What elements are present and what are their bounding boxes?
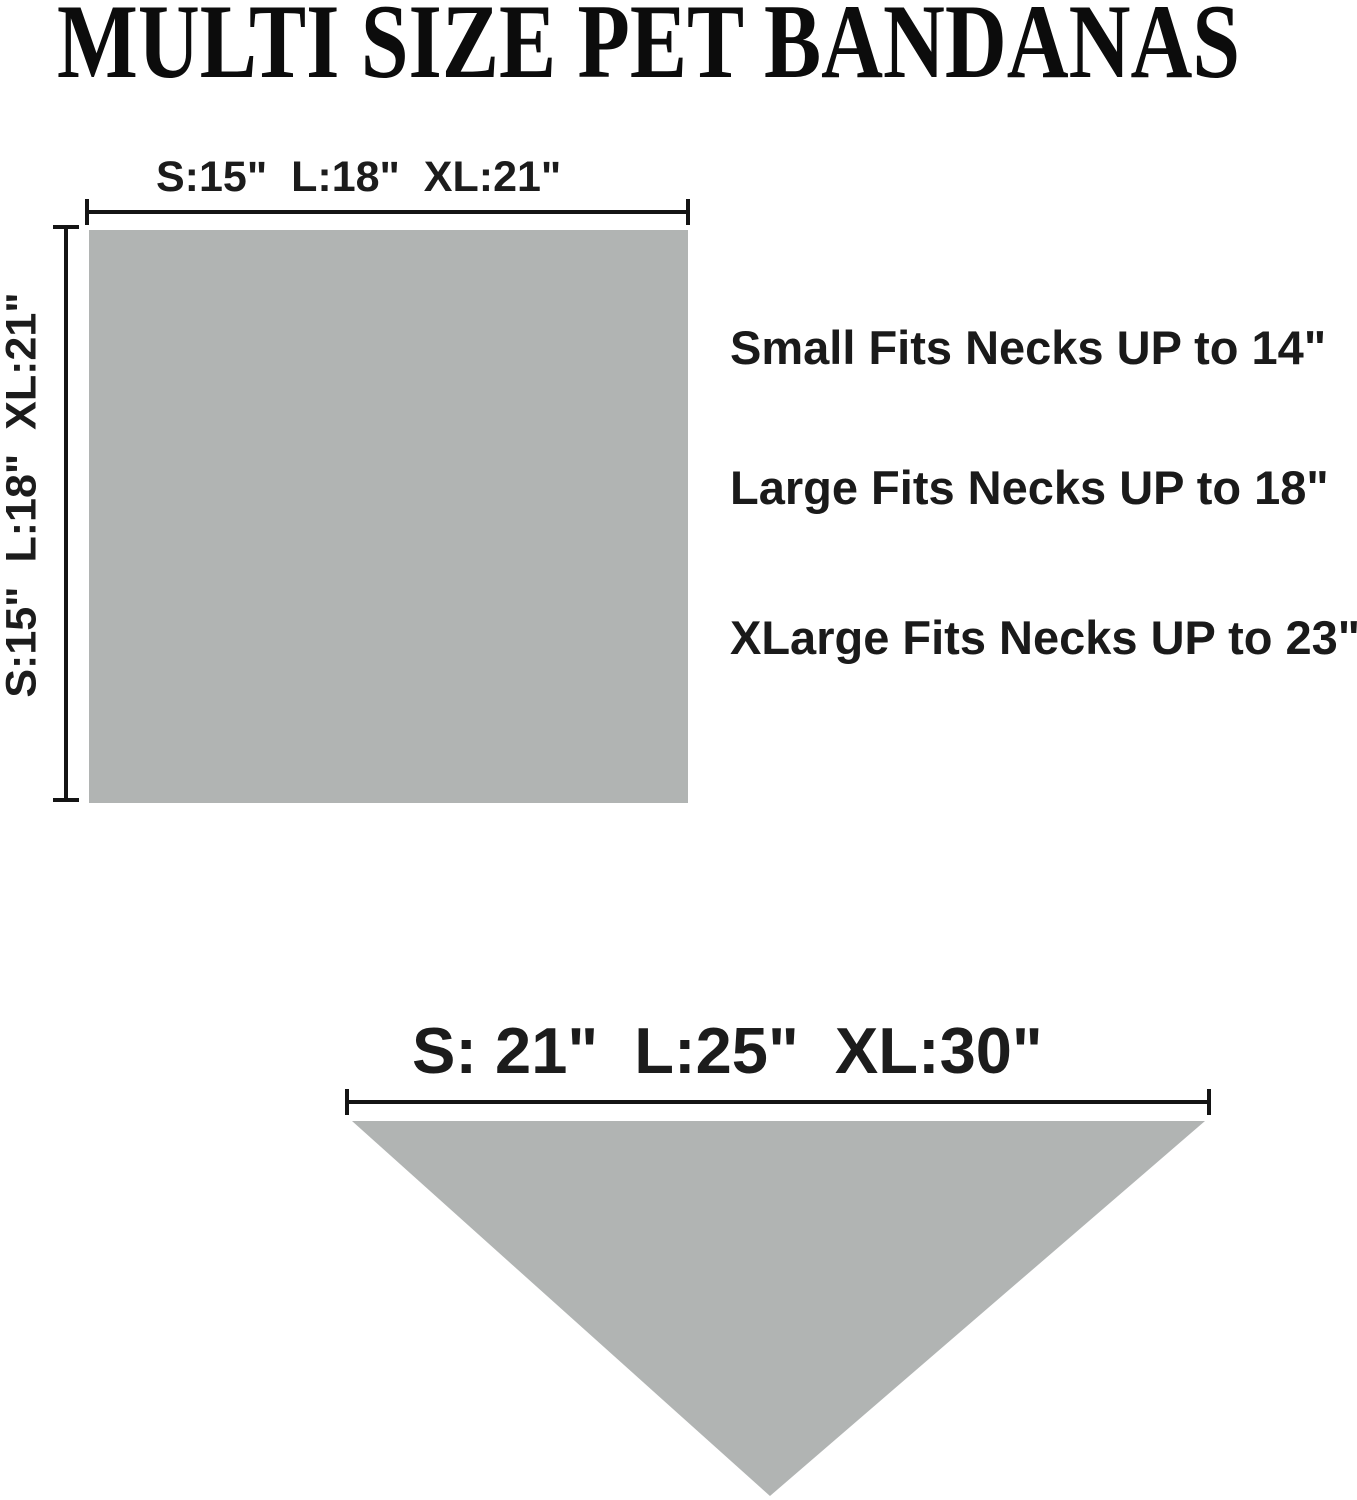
square-height-label: S:15" L:18" XL:21" xyxy=(1,292,44,697)
triangle-width-label: S: 21" L:25" XL:30" xyxy=(412,1018,1043,1083)
square-bandana-shape xyxy=(89,230,688,803)
square-width-label: S:15" L:18" XL:21" xyxy=(156,156,561,199)
page-title-area: MULTI SIZE PET BANDANAS xyxy=(0,0,1357,120)
size-chart-page: MULTI SIZE PET BANDANAS S:15" L:18" XL:2… xyxy=(0,0,1357,1500)
fit-note-large: Large Fits Necks UP to 18" xyxy=(730,464,1329,511)
triangle-width-dimension-line xyxy=(347,1100,1209,1104)
fit-note-small: Small Fits Necks UP to 14" xyxy=(730,324,1326,371)
page-title: MULTI SIZE PET BANDANAS xyxy=(57,0,1240,100)
fit-note-xlarge: XLarge Fits Necks UP to 23" xyxy=(730,614,1357,661)
square-height-dimension-line xyxy=(64,227,68,800)
square-width-dimension-line xyxy=(87,210,688,214)
triangle-bandana-shape xyxy=(352,1121,1205,1496)
